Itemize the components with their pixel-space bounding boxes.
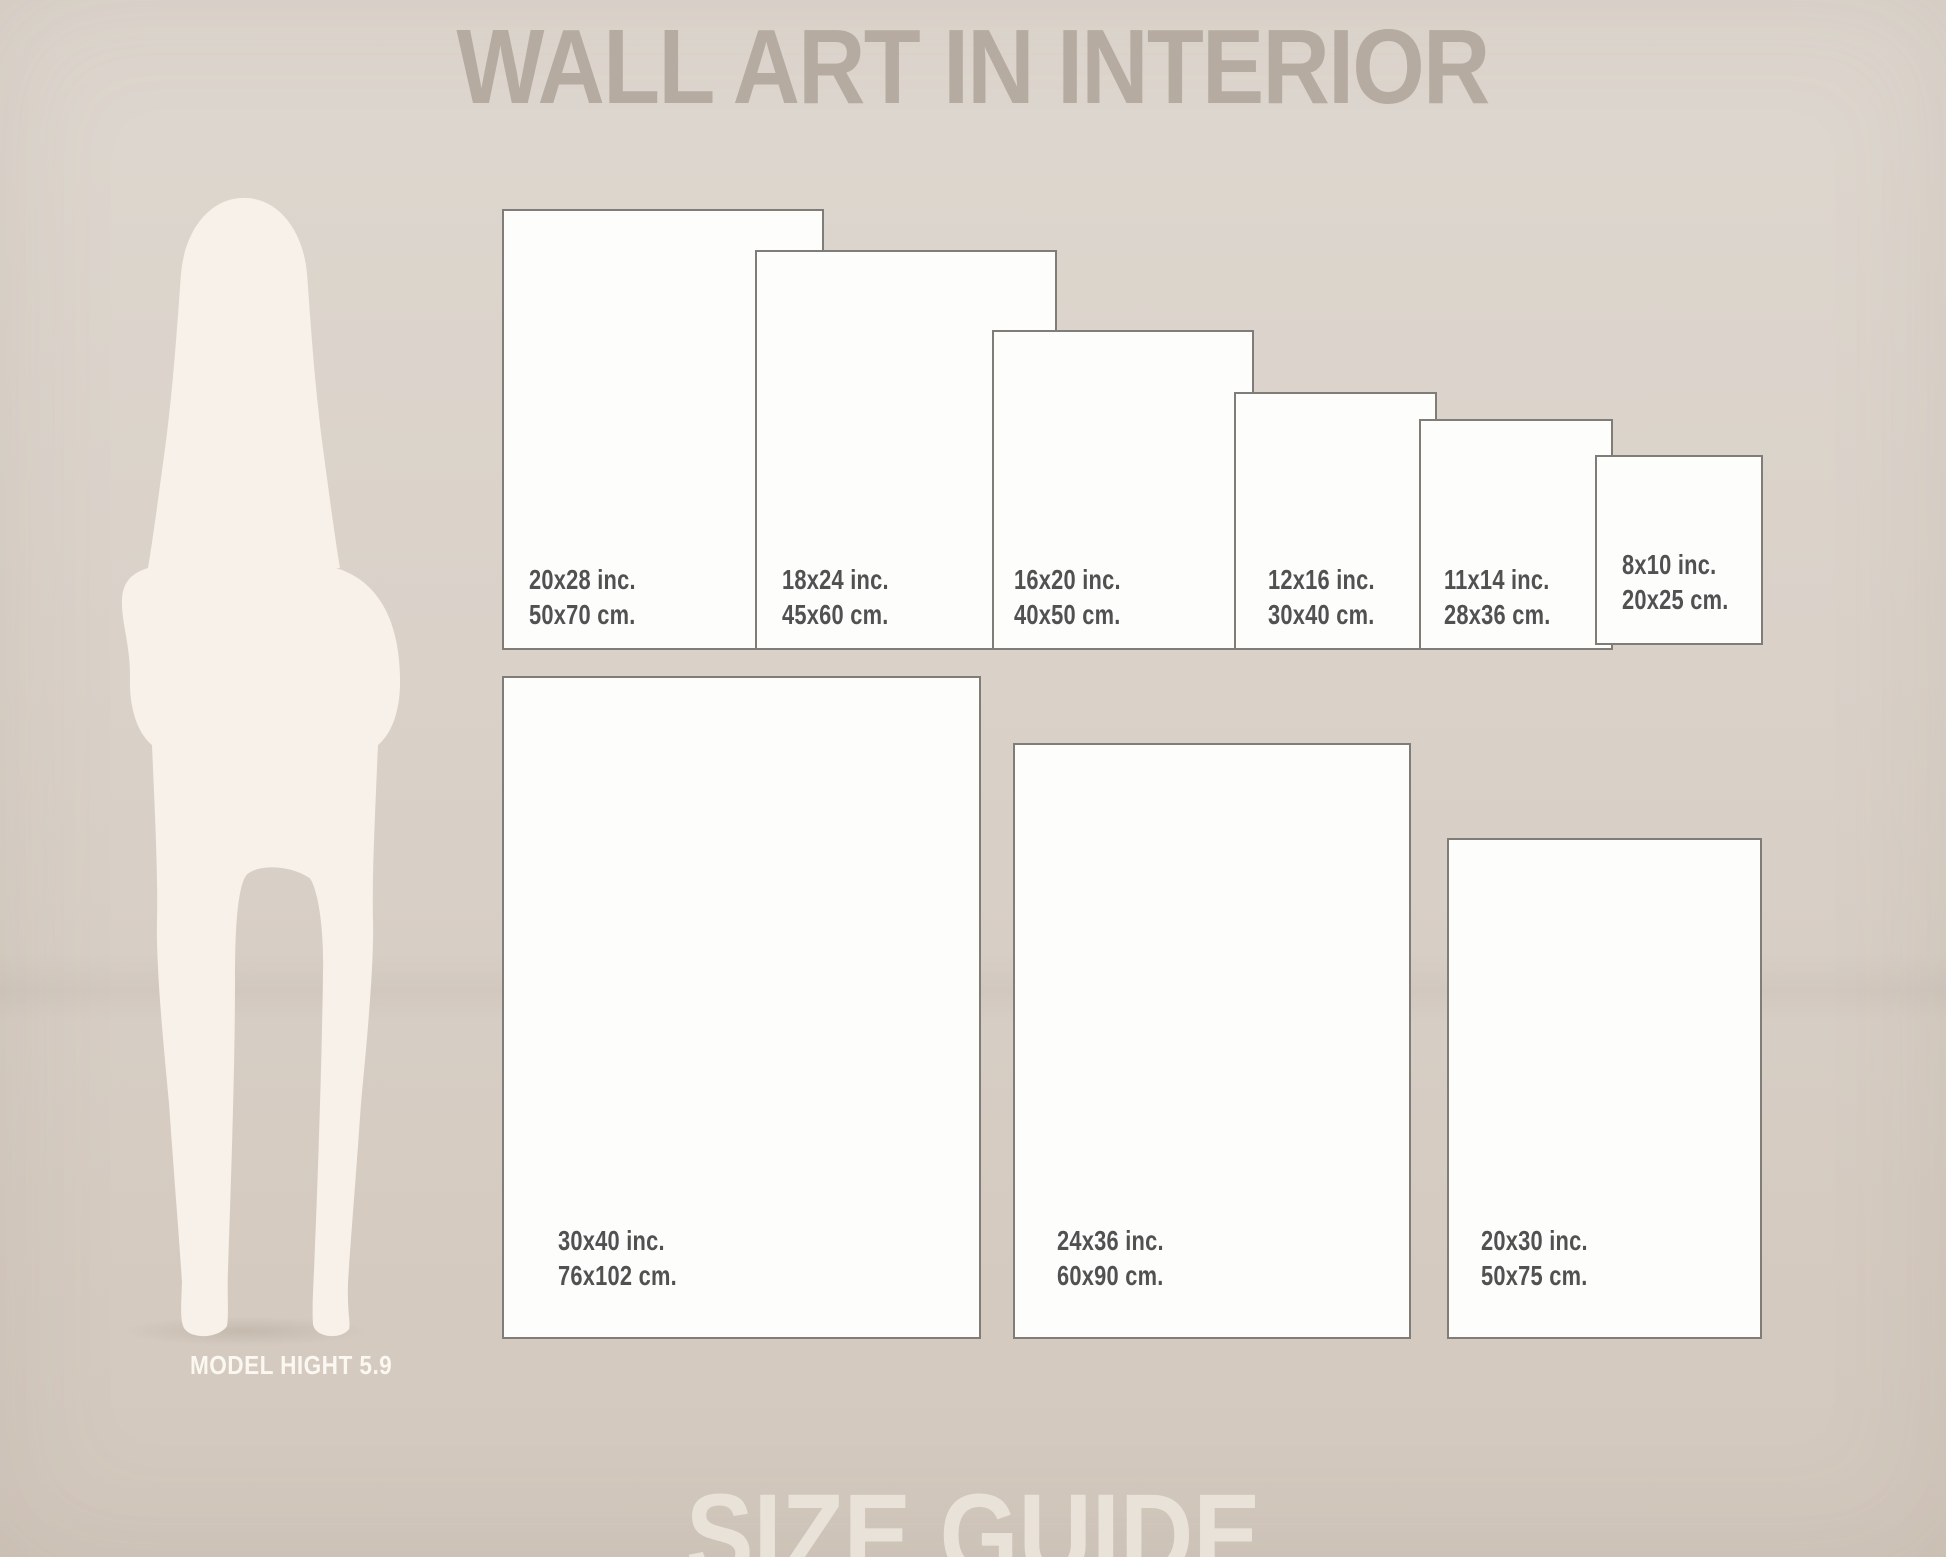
size-cm: 76x102 cm. bbox=[558, 1258, 677, 1293]
size-frame-20x30: 20x30 inc.50x75 cm. bbox=[1447, 838, 1762, 1339]
size-frame-11x14: 11x14 inc.28x36 cm. bbox=[1419, 419, 1613, 650]
size-label: 12x16 inc.30x40 cm. bbox=[1268, 562, 1375, 632]
size-inches: 20x28 inc. bbox=[529, 562, 636, 597]
size-label: 24x36 inc.60x90 cm. bbox=[1057, 1223, 1164, 1293]
model-height-caption: MODEL HIGHT 5.9 bbox=[190, 1350, 392, 1381]
size-cm: 28x36 cm. bbox=[1444, 597, 1551, 632]
size-cm: 50x70 cm. bbox=[529, 597, 636, 632]
size-label: 16x20 inc.40x50 cm. bbox=[1014, 562, 1121, 632]
size-inches: 20x30 inc. bbox=[1481, 1223, 1588, 1258]
size-label: 20x28 inc.50x70 cm. bbox=[529, 562, 636, 632]
size-cm: 60x90 cm. bbox=[1057, 1258, 1164, 1293]
size-inches: 30x40 inc. bbox=[558, 1223, 677, 1258]
footer-title: SIZE GUIDE bbox=[0, 1477, 1946, 1557]
size-guide-poster: WALL ART IN INTERIOR MODEL HIGHT 5.9 20x… bbox=[0, 0, 1946, 1557]
size-cm: 20x25 cm. bbox=[1622, 582, 1729, 617]
size-label: 30x40 inc.76x102 cm. bbox=[558, 1223, 677, 1293]
size-cm: 30x40 cm. bbox=[1268, 597, 1375, 632]
size-frame-24x36: 24x36 inc.60x90 cm. bbox=[1013, 743, 1411, 1339]
page-title: WALL ART IN INTERIOR bbox=[0, 14, 1946, 120]
size-inches: 16x20 inc. bbox=[1014, 562, 1121, 597]
size-inches: 12x16 inc. bbox=[1268, 562, 1375, 597]
size-label: 20x30 inc.50x75 cm. bbox=[1481, 1223, 1588, 1293]
size-label: 18x24 inc.45x60 cm. bbox=[782, 562, 889, 632]
size-frame-12x16: 12x16 inc.30x40 cm. bbox=[1234, 392, 1437, 650]
size-inches: 18x24 inc. bbox=[782, 562, 889, 597]
size-cm: 40x50 cm. bbox=[1014, 597, 1121, 632]
woman-silhouette bbox=[84, 178, 404, 1342]
size-cm: 45x60 cm. bbox=[782, 597, 889, 632]
size-frame-16x20: 16x20 inc.40x50 cm. bbox=[992, 330, 1254, 650]
size-inches: 8x10 inc. bbox=[1622, 547, 1729, 582]
size-label: 11x14 inc.28x36 cm. bbox=[1444, 562, 1551, 632]
size-label: 8x10 inc.20x25 cm. bbox=[1622, 547, 1729, 617]
size-inches: 11x14 inc. bbox=[1444, 562, 1551, 597]
size-cm: 50x75 cm. bbox=[1481, 1258, 1588, 1293]
size-frame-8x10: 8x10 inc.20x25 cm. bbox=[1595, 455, 1763, 645]
size-frame-30x40: 30x40 inc.76x102 cm. bbox=[502, 676, 981, 1339]
size-inches: 24x36 inc. bbox=[1057, 1223, 1164, 1258]
